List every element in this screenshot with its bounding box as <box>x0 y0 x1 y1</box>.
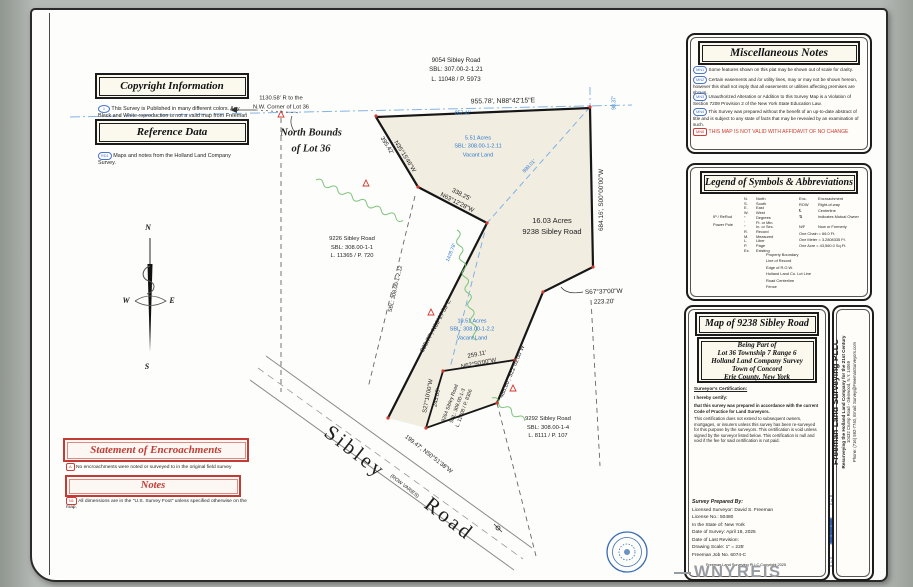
legend-symbol-powerpole: Power Pole <box>713 222 733 227</box>
notes-banner: Notes <box>65 475 241 497</box>
abbr-key: Enc. <box>799 196 807 201</box>
being-line: Holland Land Company Survey <box>699 357 815 365</box>
abbr-val: Indicates Mutual Owner <box>818 214 864 219</box>
misc-ref-4: MN4 <box>693 108 707 116</box>
misc-text-3: Unauthorized Alteration or Addition to t… <box>693 94 851 106</box>
legend-line-label: Line of Record <box>766 258 791 263</box>
compass-needle <box>135 238 166 352</box>
abbr-val: One Acre = 43,560.0 Sq.Ft. <box>799 243 846 248</box>
legend-symbol-iprerod: IP / ReRod <box>713 214 732 219</box>
encroachments-banner: Statement of Encroachments <box>63 438 249 462</box>
misc-note-3: MN3 Unauthorized Alteration or Addition … <box>693 93 861 107</box>
compass-w: W <box>122 295 129 307</box>
copyright-info-banner: Copyright Information <box>95 73 249 99</box>
abbr-val: Right-of-way <box>818 202 840 207</box>
encroachments-note-text: No encroachments were noted or surveyed … <box>76 465 232 470</box>
record-line-9292-east <box>591 300 600 466</box>
dim-east-small: 98.37' <box>611 96 619 109</box>
being-line: Town of Concord <box>699 365 815 373</box>
encroachments-title: Statement of Encroachments <box>90 444 221 456</box>
cert-intro: I hereby certify: <box>694 395 728 401</box>
abbr-key: Ex. <box>744 248 750 253</box>
misc-notes-title: Miscellaneous Notes <box>730 47 828 59</box>
reference-note-text: Maps and notes from the Holland Land Com… <box>98 153 231 166</box>
prepared-line: License No.: 50480 <box>692 514 773 521</box>
prepared-line: Licensed Surveyor: David S. Freeman <box>692 507 773 514</box>
legend-banner: Legend of Symbols & Abbreviations <box>700 171 858 194</box>
abbr-val: Encroachment <box>818 196 843 201</box>
legend-line-label: Holland Land Co. Lot Line <box>766 271 811 276</box>
wnyreis-watermark: WNYREIS <box>694 563 782 582</box>
being-line: Lot 36 Township 7 Range 6 <box>699 349 815 357</box>
copyright-ref: 1 <box>98 105 110 113</box>
misc-notes-banner: Miscellaneous Notes <box>698 41 860 65</box>
reference-note: RD1 Maps and notes from the Holland Land… <box>98 152 248 167</box>
prepared-line: Date of Survey: April 18, 2025 <box>692 529 773 536</box>
misc-note-5: MN5 THIS MAP IS NOT VALID WITH AFFIDAVIT… <box>693 128 865 136</box>
parcel-label-1051: 10.51 AcresSBL: 308.00-1-2.2Vacant Land <box>450 318 495 343</box>
parcel-label-9292: 9292 Sibley RoadSBL: 308.00-1-4L. 8111 /… <box>525 415 571 441</box>
parcel-label-551: 5.51 AcresSBL: 308.00-1-2.11Vacant Land <box>454 135 501 160</box>
cert-heading: Surveyor's Certification: <box>694 386 747 392</box>
abbr-val: One Meter = 3.2808335 Ft. <box>799 237 846 242</box>
abbr-key: ROW <box>799 202 809 207</box>
dim-top-inner: 857.41' <box>455 110 471 118</box>
dim-s67: S67°37'00"W223.20' <box>585 287 623 308</box>
being-part-box: Being Part of Lot 36 Township 7 Range 6 … <box>697 337 817 383</box>
prepared-by-lines: Licensed Surveyor: David S. Freeman Lice… <box>692 507 773 559</box>
watermark-dash <box>674 572 691 574</box>
prepared-by-heading: Survey Prepared By: <box>692 499 743 506</box>
prepared-line: Drawing Scale: 1" = 225' <box>692 544 773 551</box>
parcel-label-9226: 9226 Sibley RoadSBL: 308.00-1-1L. 11365 … <box>329 235 375 261</box>
abbr-key: ⇅ <box>799 214 802 219</box>
misc-ref-5: MN5 <box>693 128 707 136</box>
parcel-label-9238: 16.03 Acres9238 Sibley Road <box>522 215 581 238</box>
notes-note: N1 All dimensions are in the "U.S. Surve… <box>66 497 252 512</box>
reference-ref: RD1 <box>98 152 112 160</box>
misc-note-4: MN4 This Survey was prepared without the… <box>693 108 861 128</box>
reference-data-title: Reference Data <box>137 126 208 138</box>
misc-text-4: This Survey was prepared without the ben… <box>693 109 858 127</box>
being-line: Erie County, New York <box>699 373 815 381</box>
misc-ref-1: MN1 <box>693 66 707 74</box>
legend-line-label: Property Boundary <box>766 252 798 257</box>
map-title: Map of 9238 Sibley Road <box>705 318 809 329</box>
misc-text-5: THIS MAP IS NOT VALID WITH AFFIDAVIT OF … <box>709 129 849 135</box>
abbr-key: ℄ <box>799 208 802 213</box>
notes-ref: N1 <box>66 497 77 505</box>
being-line: Being Part of <box>699 341 815 349</box>
prepared-line: Freeman Job No. 6074-C <box>692 552 773 559</box>
cert-p2: This certification does not extend to su… <box>694 416 820 444</box>
misc-ref-2: MN2 <box>693 76 707 84</box>
legend-line-label: Fence <box>766 284 777 289</box>
nw-corner-note: 1130.58' R to theN.W. Corner of Lot 36 <box>253 94 309 111</box>
dim-top: 955.78', N88°42'15"E <box>471 96 536 107</box>
notes-title: Notes <box>141 480 166 491</box>
company-name: Freeman Land Surveying PLLC <box>830 282 841 522</box>
legend-line-label: Edge of R.O.W. <box>766 265 793 270</box>
misc-text-1: Some features shown on this plat may be … <box>709 67 853 72</box>
reference-data-banner: Reference Data <box>95 119 249 145</box>
prepared-line: In the State of: New York <box>692 522 773 529</box>
company-contact: Phone: (716) 592-7740, Email: Survey@Fre… <box>852 282 857 522</box>
compass-n: N <box>145 222 151 234</box>
abbr-val: Centerline <box>818 208 836 213</box>
legend-line-label: Road Centerline <box>766 278 794 283</box>
prepared-line: Date of Last Revision: <box>692 537 773 544</box>
company-banner: Freeman Land Surveying PLLC Resurveying … <box>830 282 872 522</box>
notes-note-text: All dimensions are in the "U.S. Survey F… <box>66 499 247 510</box>
misc-note-1: MN1 Some features shown on this plat may… <box>693 66 861 74</box>
abbr-val: Now or Formerly <box>818 224 847 229</box>
legend-title: Legend of Symbols & Abbreviations <box>705 177 853 188</box>
encroachments-ref: A <box>66 463 75 471</box>
surveyor-seal <box>607 532 647 572</box>
compass-e: E <box>169 295 174 307</box>
compass-s: S <box>145 361 149 373</box>
map-title-banner: Map of 9238 Sibley Road <box>695 312 819 336</box>
copyright-info-title: Copyright Information <box>120 80 224 92</box>
encroachments-note: A No encroachments were noted or surveye… <box>66 463 248 471</box>
parcel-label-9054: 9054 Sibley RoadSBL: 307.00-2-1.21L. 110… <box>429 56 483 84</box>
north-bounds-label: North Boundsof Lot 36 <box>280 125 342 157</box>
abbr-val: One Chain = 66.0 Ft. <box>799 231 835 236</box>
cert-p1: that this survey was prepared in accorda… <box>694 403 820 414</box>
misc-ref-3: MN3 <box>693 93 707 101</box>
dim-east: 684.16', S00°00'00"W <box>597 169 607 231</box>
abbr-key: N/F <box>799 224 805 229</box>
